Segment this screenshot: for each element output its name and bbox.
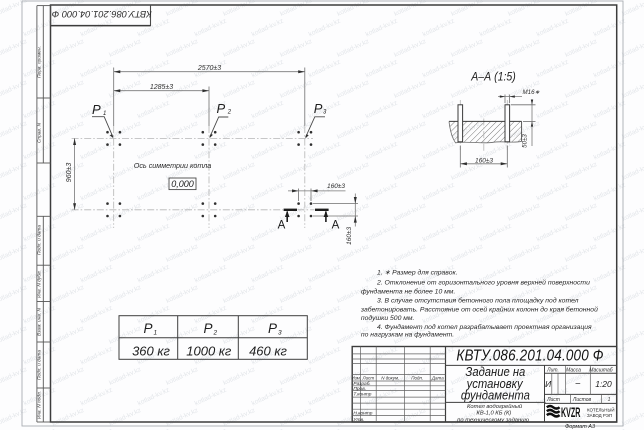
svg-text:КВТУ.086.201.04.000 Ф: КВТУ.086.201.04.000 Ф xyxy=(51,9,152,20)
svg-text:КВ-1,0 КБ (К): КВ-1,0 КБ (К) xyxy=(476,410,511,416)
svg-text:3. В случае отсутствия бетонно: 3. В случае отсутствия бетонного пола пл… xyxy=(377,297,579,305)
svg-text:2570±3: 2570±3 xyxy=(197,65,221,72)
svg-text:P: P xyxy=(314,101,323,116)
svg-text:Инв. N дубл.: Инв. N дубл. xyxy=(36,270,42,298)
svg-text:Масса: Масса xyxy=(566,367,581,373)
svg-text:Ось симметрии котла: Ось симметрии котла xyxy=(134,161,212,170)
svg-text:160±3: 160±3 xyxy=(346,227,353,245)
svg-text:И: И xyxy=(545,379,552,389)
svg-text:Взам. инв. N: Взам. инв. N xyxy=(36,308,42,336)
svg-text:1. ∗ Размер для справок.: 1. ∗ Размер для справок. xyxy=(377,269,458,277)
svg-text:Подп. и дата: Подп. и дата xyxy=(36,350,42,380)
svg-text:Н.контр: Н.контр xyxy=(353,411,372,417)
svg-text:Инв. N подл.: Инв. N подл. xyxy=(36,391,42,419)
svg-text:Лист: Лист xyxy=(546,397,560,403)
svg-text:1: 1 xyxy=(608,397,611,403)
svg-text:P: P xyxy=(144,321,153,336)
svg-text:Утв.: Утв. xyxy=(353,417,364,423)
svg-text:Котел водогрейный: Котел водогрейный xyxy=(467,403,523,410)
svg-text:460 кг: 460 кг xyxy=(249,344,287,359)
svg-text:–: – xyxy=(575,378,581,388)
svg-text:160±3: 160±3 xyxy=(475,157,493,164)
svg-text:1: 1 xyxy=(103,111,106,117)
svg-text:подушки 500 мм.: подушки 500 мм. xyxy=(361,314,415,322)
svg-text:М16∗: М16∗ xyxy=(523,89,541,96)
svg-text:160±3: 160±3 xyxy=(327,183,345,190)
svg-text:Лит.: Лит. xyxy=(546,367,559,373)
svg-text:А–А (1:5): А–А (1:5) xyxy=(470,71,516,84)
svg-text:по нагрузкам на фундамент.: по нагрузкам на фундамент. xyxy=(361,331,454,339)
svg-text:А: А xyxy=(278,220,286,232)
svg-text:P: P xyxy=(204,321,213,336)
svg-text:P: P xyxy=(92,102,101,117)
svg-text:Перв. примен.: Перв. примен. xyxy=(36,46,42,78)
svg-text:2: 2 xyxy=(213,330,218,337)
svg-text:Листов: Листов xyxy=(572,397,592,403)
svg-text:фундамента: фундамента xyxy=(461,388,530,403)
svg-text:1:20: 1:20 xyxy=(595,379,612,389)
svg-text:2. Отклонение от горизонтально: 2. Отклонение от горизонтального уровня … xyxy=(376,278,590,286)
svg-text:4. Фундамент под котел разраба: 4. Фундамент под котел разрабатывает про… xyxy=(377,323,592,331)
svg-text:360 кг: 360 кг xyxy=(132,344,170,359)
svg-text:3: 3 xyxy=(278,330,282,337)
svg-text:N докум.: N докум. xyxy=(381,376,399,381)
svg-text:Пров.: Пров. xyxy=(353,386,366,392)
svg-text:Формат А3: Формат А3 xyxy=(565,424,596,430)
svg-text:960±3: 960±3 xyxy=(66,163,73,183)
svg-text:Т.контр: Т.контр xyxy=(353,391,371,397)
svg-text:1: 1 xyxy=(154,330,158,337)
svg-text:50±3: 50±3 xyxy=(521,134,528,148)
svg-text:Подп. и дата: Подп. и дата xyxy=(36,225,42,255)
svg-text:фундамента не более 10 мм.: фундамента не более 10 мм. xyxy=(361,287,456,295)
svg-text:Дата: Дата xyxy=(431,376,444,381)
svg-text:забетонировать. Расстояние от: забетонировать. Расстояние от осей крайн… xyxy=(360,306,598,314)
svg-text:P: P xyxy=(217,101,226,116)
svg-text:KVZR: KVZR xyxy=(561,405,580,420)
svg-text:по техническому заданию: по техническому заданию xyxy=(457,417,529,423)
svg-text:ЗАВОД РЭП: ЗАВОД РЭП xyxy=(587,413,612,418)
svg-text:КВТУ.086.201.04.000 Ф: КВТУ.086.201.04.000 Ф xyxy=(456,348,603,365)
svg-text:1000 кг: 1000 кг xyxy=(186,344,232,359)
svg-text:Справ. N: Справ. N xyxy=(36,122,42,143)
svg-text:Масштаб: Масштаб xyxy=(589,367,613,373)
svg-text:Подп.: Подп. xyxy=(411,376,423,381)
svg-text:А: А xyxy=(332,220,340,232)
svg-text:1285±3: 1285±3 xyxy=(150,84,173,91)
svg-text:КОТЕЛЬНЫЙ: КОТЕЛЬНЫЙ xyxy=(587,408,615,413)
svg-text:Изм.: Изм. xyxy=(351,376,361,381)
svg-text:Лист: Лист xyxy=(362,376,375,381)
svg-text:0,000: 0,000 xyxy=(171,179,194,189)
svg-text:2: 2 xyxy=(227,110,232,116)
svg-text:P: P xyxy=(268,321,277,336)
